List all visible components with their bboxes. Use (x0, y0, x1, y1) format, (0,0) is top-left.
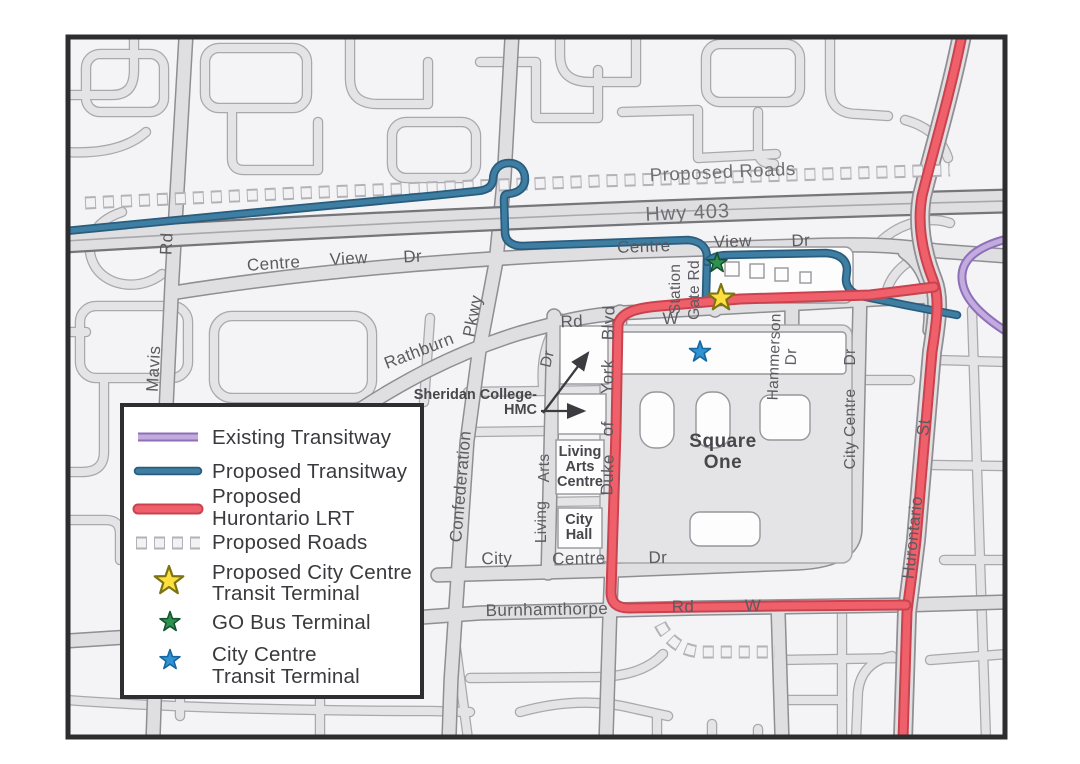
screenshot-canvas: Proposed Roads Hwy 403 Mavis Rd Centre V… (0, 0, 1080, 764)
centre-view-w-dr: Dr (403, 247, 423, 267)
legend-label-proposed-transitway: Proposed Transitway (212, 460, 408, 483)
legend-label-go-bus: GO Bus Terminal (212, 611, 371, 634)
city-centre-vertical-label: City Centre (842, 389, 859, 470)
gate-rd-label: Gate Rd (686, 260, 703, 320)
york-label: York (597, 359, 617, 395)
station-label: Station (667, 264, 684, 314)
legend-label-lrt-line1: Proposed (212, 485, 301, 508)
square-one-label-line2: One (704, 452, 742, 473)
legend-label-lrt-line2: Hurontario LRT (212, 507, 355, 530)
legend: Existing Transitway Proposed Transitway … (122, 405, 422, 697)
rathburn-rd-label: Rd (560, 312, 583, 332)
city-hall-label-line2: Hall (566, 527, 593, 543)
sheridan-label-line1: Sheridan College- (414, 387, 537, 403)
centre-view-w-view: View (329, 248, 368, 269)
transit-map: Proposed Roads Hwy 403 Mavis Rd Centre V… (0, 0, 1080, 764)
legend-label-proposed-terminal-line2: Transit Terminal (212, 582, 360, 605)
city-centre-dr-city: City (481, 549, 512, 569)
city-centre-vertical-dr-label: Dr (842, 349, 859, 366)
hwy-403-label: Hwy 403 (645, 200, 731, 226)
living-arts-centre-label-line2: Arts (565, 459, 594, 475)
living-arts-centre-label-line3: Centre (557, 474, 603, 490)
legend-label-proposed-roads: Proposed Roads (212, 531, 368, 554)
legend-label-city-centre-line1: City Centre (212, 643, 317, 666)
centre-view-w-centre: Centre (246, 252, 301, 275)
burnhamthorpe-rd-label: Rd (672, 597, 695, 616)
sheridan-label-line2: HMC (504, 402, 538, 418)
centre-view-e-centre: Centre (617, 236, 671, 257)
living-label: Living (533, 501, 550, 543)
legend-label-proposed-terminal-line1: Proposed City Centre (212, 561, 412, 584)
burnhamthorpe-label: Burnhamthorpe (486, 599, 609, 620)
arts-label: Arts (536, 454, 553, 483)
legend-label-existing-transitway: Existing Transitway (212, 426, 392, 449)
mavis-rd-label: Rd (156, 232, 176, 256)
blvd-label: Blvd (598, 305, 618, 340)
hurontario-st-label: St (913, 418, 934, 437)
hammerson-label: Hammerson (764, 313, 784, 401)
square-one-north-building (616, 332, 846, 374)
legend-label-city-centre-line2: Transit Terminal (212, 665, 360, 688)
centre-view-e-view: View (713, 231, 752, 251)
city-hall-label-line1: City (565, 512, 592, 528)
hammerson-dr-label: Dr (783, 348, 801, 366)
living-arts-centre-label-line1: Living (559, 444, 602, 460)
centre-view-e-dr: Dr (791, 231, 810, 251)
mavis-label: Mavis (143, 345, 164, 392)
square-one-label-line1: Square (689, 431, 756, 452)
of-label: of (598, 421, 618, 437)
city-centre-dr-centre: Centre (552, 549, 606, 569)
burnhamthorpe-w-label: W (745, 596, 761, 615)
city-centre-dr-dr: Dr (648, 548, 667, 567)
